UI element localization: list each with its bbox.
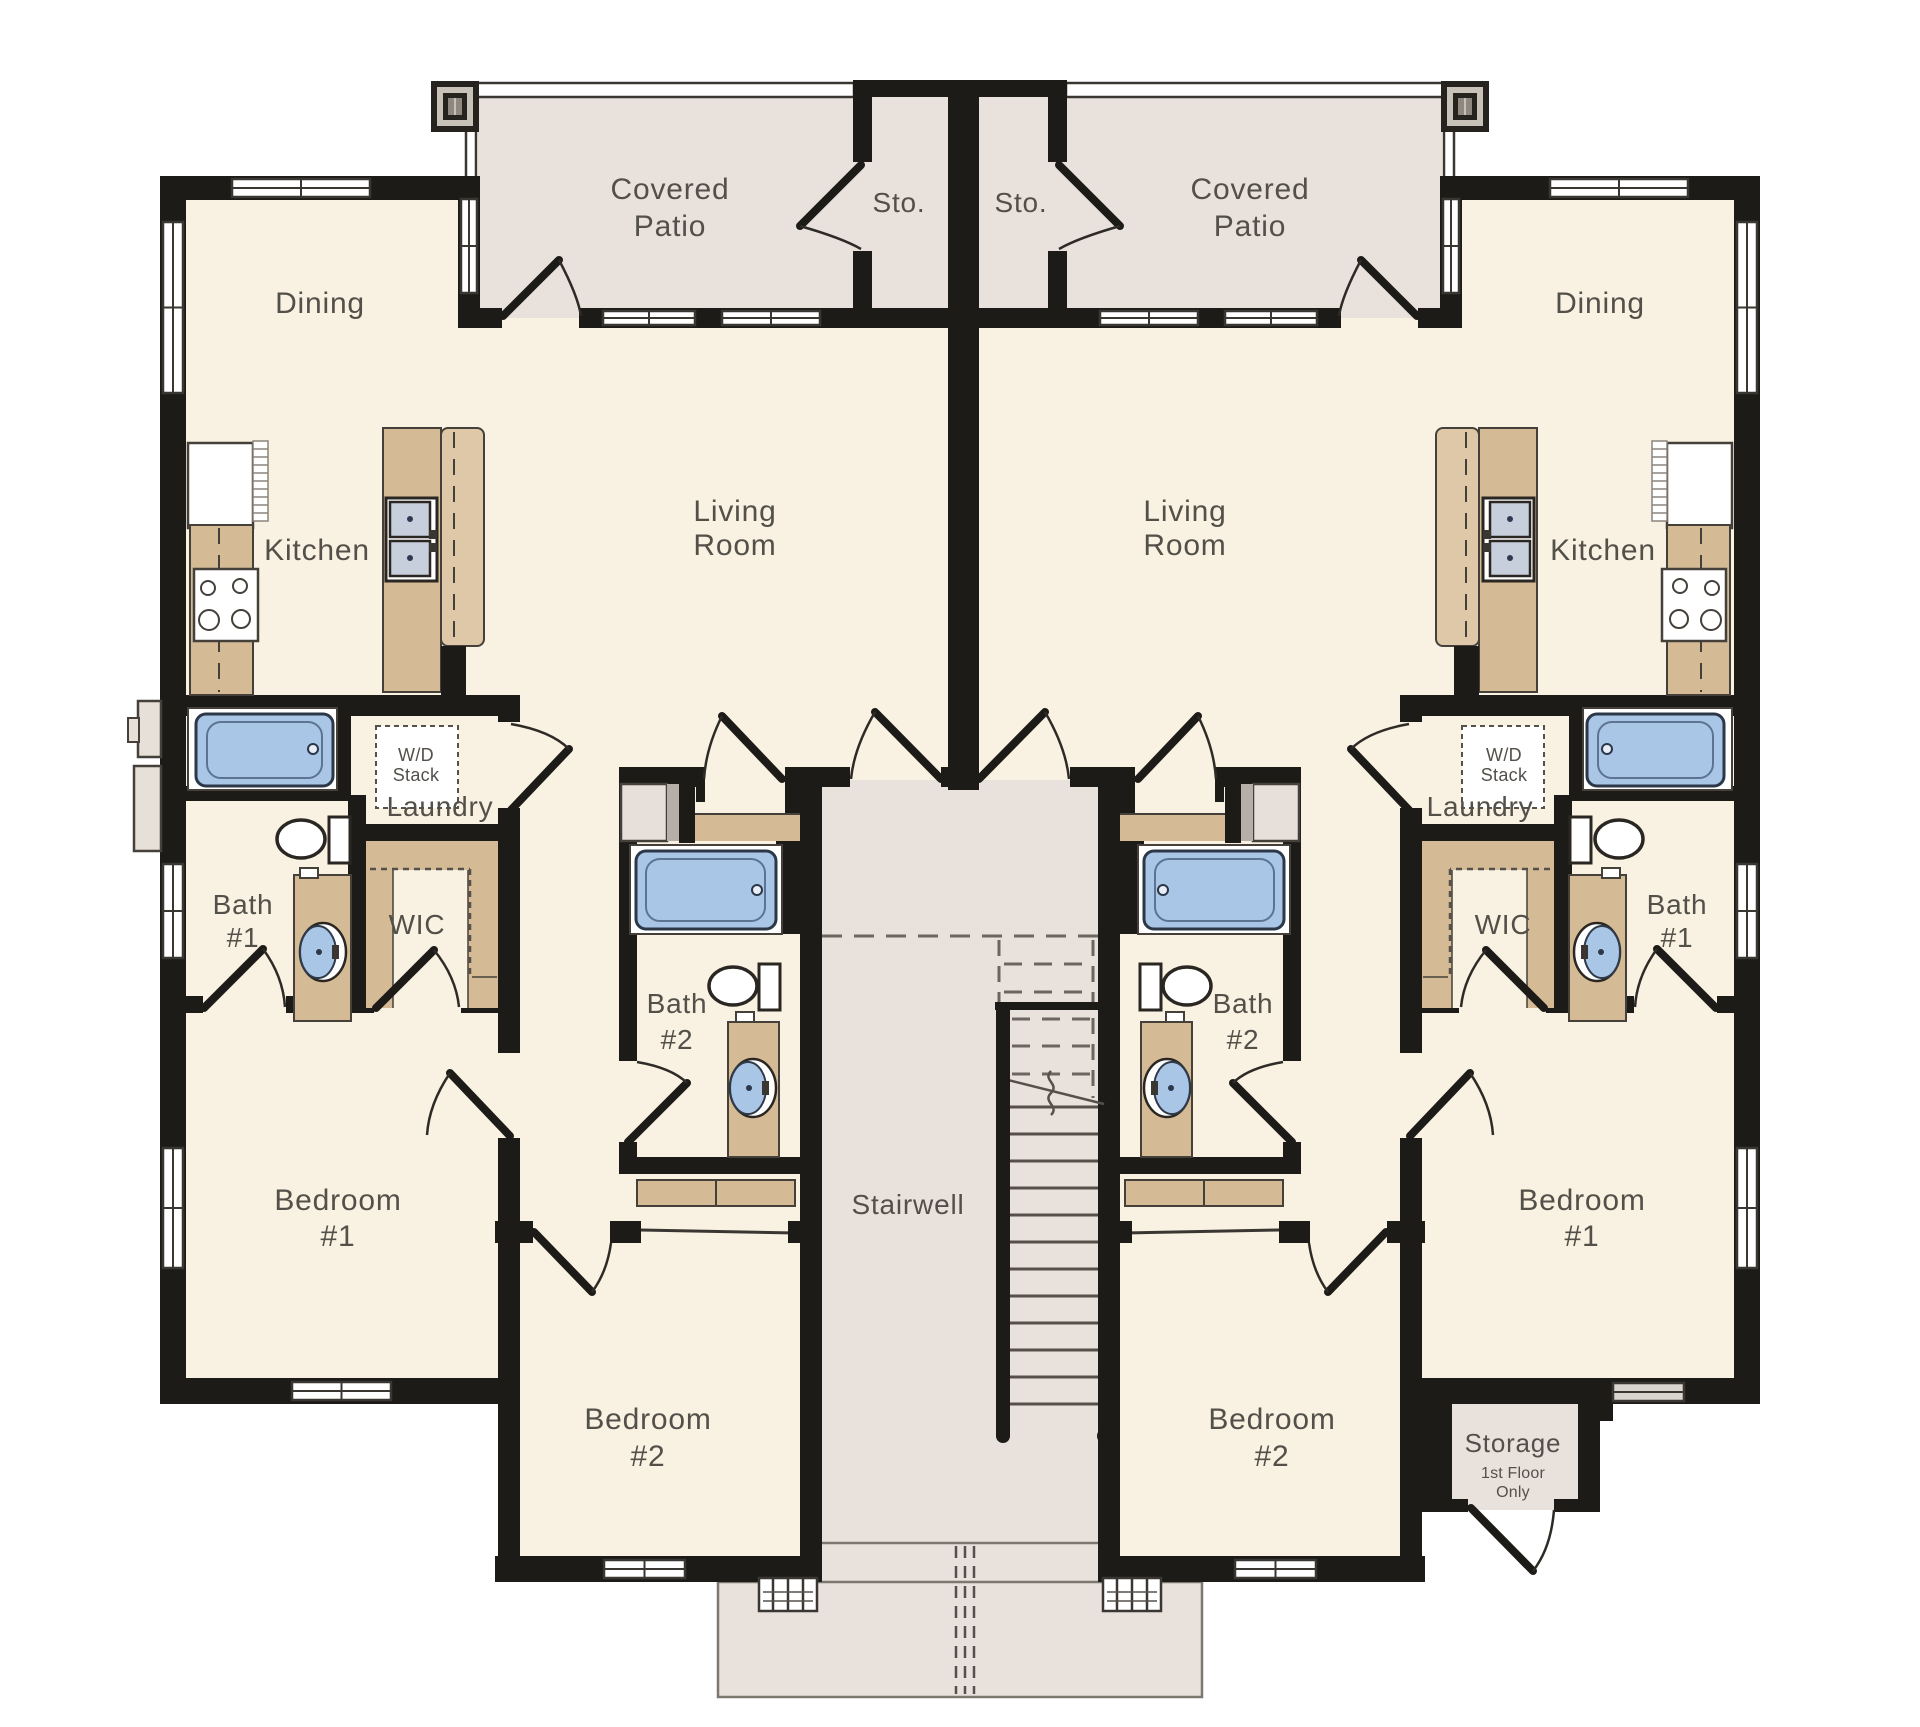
svg-text:Stack: Stack (1481, 765, 1528, 785)
svg-text:#2: #2 (1227, 1024, 1260, 1055)
svg-text:Room: Room (693, 529, 776, 562)
svg-text:#2: #2 (661, 1024, 694, 1055)
svg-text:Sto.: Sto. (994, 187, 1047, 218)
svg-text:Only: Only (1496, 1484, 1530, 1501)
svg-text:Bedroom: Bedroom (584, 1403, 711, 1436)
svg-text:Dining: Dining (1555, 287, 1645, 320)
svg-text:Stack: Stack (393, 765, 440, 785)
svg-text:Bedroom: Bedroom (1518, 1184, 1645, 1217)
svg-text:Storage: Storage (1465, 1428, 1562, 1458)
svg-text:Bedroom: Bedroom (1208, 1403, 1335, 1436)
svg-text:Patio: Patio (634, 210, 706, 243)
svg-text:#2: #2 (631, 1440, 666, 1473)
svg-text:WIC: WIC (389, 909, 446, 940)
svg-text:Laundry: Laundry (1427, 791, 1534, 822)
svg-text:Bath: Bath (1647, 889, 1708, 920)
svg-text:Kitchen: Kitchen (264, 534, 370, 567)
svg-text:Stairwell: Stairwell (851, 1189, 964, 1220)
svg-text:Dining: Dining (275, 287, 365, 320)
svg-text:Bedroom: Bedroom (274, 1184, 401, 1217)
svg-text:Patio: Patio (1214, 210, 1286, 243)
svg-text:#1: #1 (227, 922, 260, 953)
svg-text:Bath: Bath (1213, 988, 1274, 1019)
svg-text:#2: #2 (1255, 1440, 1290, 1473)
svg-text:W/D: W/D (398, 745, 434, 765)
svg-text:Covered: Covered (611, 173, 730, 206)
svg-text:1st Floor: 1st Floor (1481, 1465, 1546, 1482)
svg-text:Laundry: Laundry (387, 791, 494, 822)
svg-text:#1: #1 (1565, 1220, 1600, 1253)
svg-text:Covered: Covered (1191, 173, 1310, 206)
svg-text:#1: #1 (321, 1220, 356, 1253)
svg-text:Room: Room (1143, 529, 1226, 562)
svg-text:WIC: WIC (1475, 909, 1532, 940)
svg-text:Kitchen: Kitchen (1550, 534, 1656, 567)
svg-text:W/D: W/D (1486, 745, 1522, 765)
svg-text:Sto.: Sto. (872, 187, 925, 218)
svg-text:Living: Living (1143, 495, 1226, 528)
svg-text:#1: #1 (1661, 922, 1694, 953)
svg-text:Living: Living (693, 495, 776, 528)
svg-text:Bath: Bath (647, 988, 708, 1019)
svg-text:Bath: Bath (213, 889, 274, 920)
